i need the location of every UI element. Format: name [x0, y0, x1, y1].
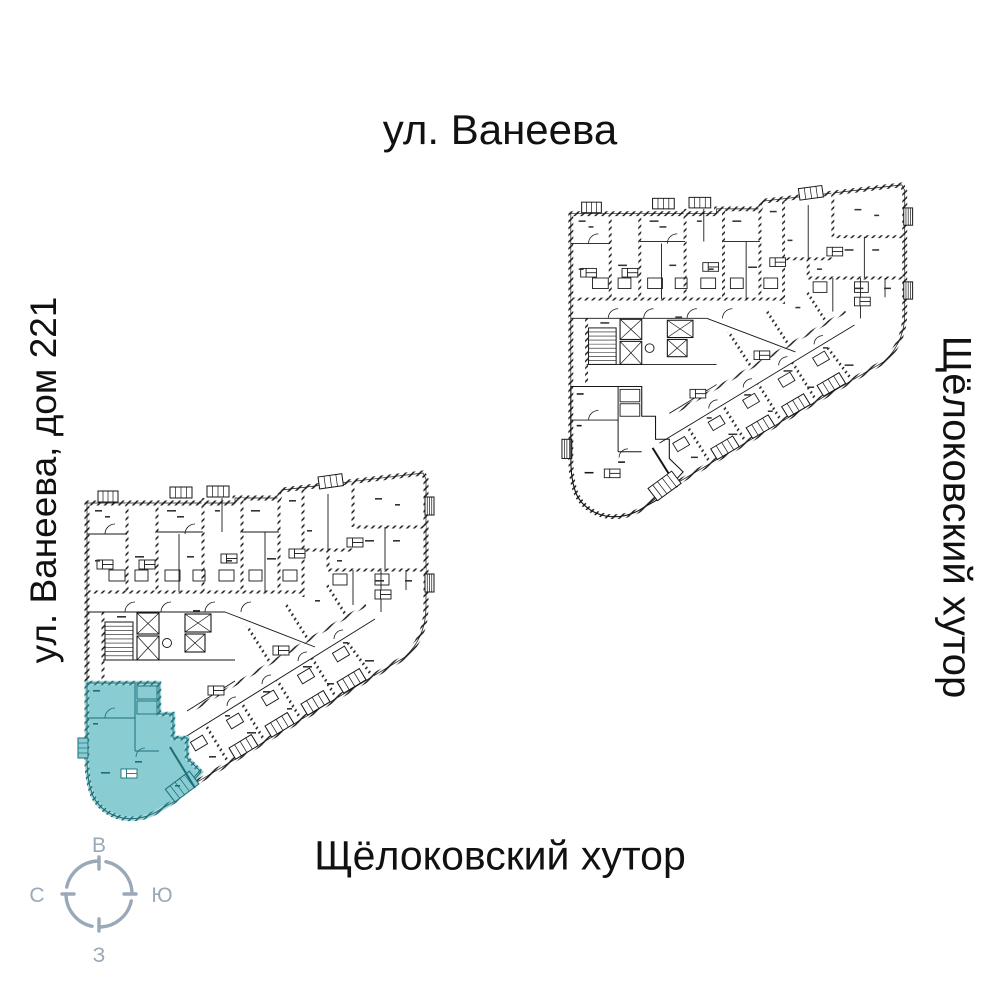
compass-rose: В Ю З С	[0, 0, 1000, 1000]
compass-south-label: Ю	[151, 884, 172, 907]
compass-circle-icon	[62, 857, 136, 931]
compass-east-label: В	[92, 834, 106, 857]
compass-north-label: С	[29, 884, 44, 907]
floor-plan-page: ул. Ванеева ул. Ванеева, дом 221 Щёлоков…	[0, 0, 1000, 1000]
compass-west-label: З	[93, 944, 106, 967]
